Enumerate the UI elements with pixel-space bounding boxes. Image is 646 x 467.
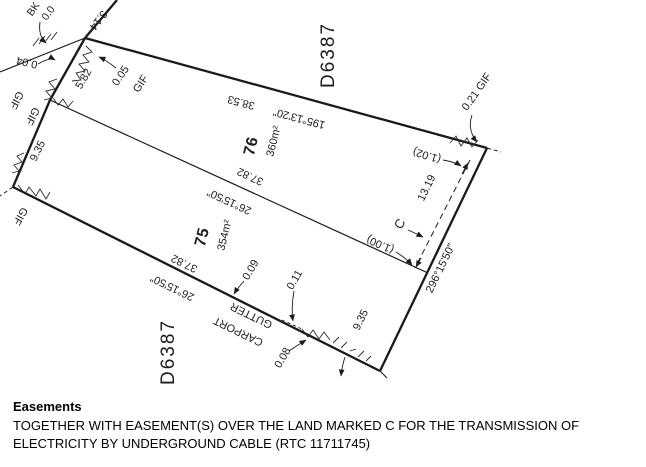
dim-0.11: 0.11 bbox=[285, 268, 306, 292]
dim-13.19: 13.19 bbox=[416, 173, 439, 203]
dim-0.05: 0.05 bbox=[110, 64, 132, 88]
plan-number-bottom: D6387 bbox=[158, 319, 179, 385]
boundary-line-west-upper-5.82 bbox=[50, 38, 85, 100]
boundary-line-north bbox=[85, 38, 487, 148]
dist-top-38.53: 38.53 bbox=[226, 93, 256, 112]
easements-section: Easements TOGETHER WITH EASEMENT(S) OVER… bbox=[13, 399, 635, 454]
easements-body: TOGETHER WITH EASEMENT(S) OVER THE LAND … bbox=[13, 417, 635, 454]
hatch-marks-nw bbox=[33, 32, 57, 46]
leader-arrow-1.00 bbox=[396, 252, 412, 265]
survey-plan-page: BK 0.0 3.14 0.04 GIF GIF 5.82 0.05 GIF D… bbox=[0, 0, 646, 467]
cadastral-plan-drawing: BK 0.0 3.14 0.04 GIF GIF 5.82 0.05 GIF D… bbox=[0, 0, 646, 395]
fence-label-gif-3: GIF bbox=[131, 73, 151, 95]
dim-5.82: 5.82 bbox=[73, 67, 94, 92]
leader-arrow-0.09 bbox=[234, 281, 244, 294]
boundary-continuation-dash-west bbox=[0, 187, 13, 196]
fence-dim-bk: 0.0 bbox=[39, 4, 57, 23]
leader-arrow-bk bbox=[40, 22, 46, 43]
leader-arrow-0.04 bbox=[38, 59, 55, 64]
leader-arrow-0.08 bbox=[289, 340, 306, 351]
easement-c-mark: C bbox=[391, 216, 409, 232]
lot-76-area: 360m² bbox=[264, 124, 283, 157]
dist-mid-37.82: 37.82 bbox=[235, 165, 265, 188]
dist-bottom-37.82: 37.82 bbox=[169, 252, 199, 275]
leader-arrow-0.21 bbox=[470, 115, 477, 142]
leader-arrow-1.02 bbox=[443, 160, 461, 166]
dim-1.02: (1.02) bbox=[411, 145, 442, 165]
lot-75-number: 75 bbox=[192, 226, 213, 248]
leader-arrow-0.11 bbox=[292, 291, 294, 321]
fence-label-gif-4: GIF bbox=[10, 205, 30, 227]
extent-arrow-13.19-top bbox=[462, 163, 468, 174]
plan-number-top: D6387 bbox=[318, 22, 339, 88]
dim-0.09: 0.09 bbox=[240, 258, 261, 283]
boundary-continuation-tick-se bbox=[380, 371, 387, 378]
lot-75-area: 354m² bbox=[215, 218, 234, 251]
leader-arrow-0.05 bbox=[99, 57, 116, 68]
boundary-continuation-dash-ne bbox=[487, 148, 501, 152]
adjoining-lot-line-west bbox=[0, 38, 85, 72]
dim-0.21-gif: 0.21 GIF bbox=[460, 71, 495, 113]
leader-arrow-easement-c bbox=[408, 230, 423, 237]
dim-0.04: 0.04 bbox=[15, 54, 39, 71]
extent-arrow-13.19-bottom bbox=[416, 258, 421, 267]
boundary-line-south bbox=[13, 187, 380, 371]
dim-0.08: 0.08 bbox=[272, 346, 293, 371]
dim-1.00: (1.00) bbox=[365, 233, 396, 256]
dim-3.14: 3.14 bbox=[87, 8, 110, 32]
dim-9.35-right: 9.35 bbox=[351, 308, 371, 333]
fence-label-gif-1: GIF bbox=[6, 89, 25, 111]
leader-arrow-carport bbox=[341, 357, 345, 376]
lot-76-number: 76 bbox=[241, 135, 262, 157]
easements-heading: Easements bbox=[13, 399, 635, 414]
